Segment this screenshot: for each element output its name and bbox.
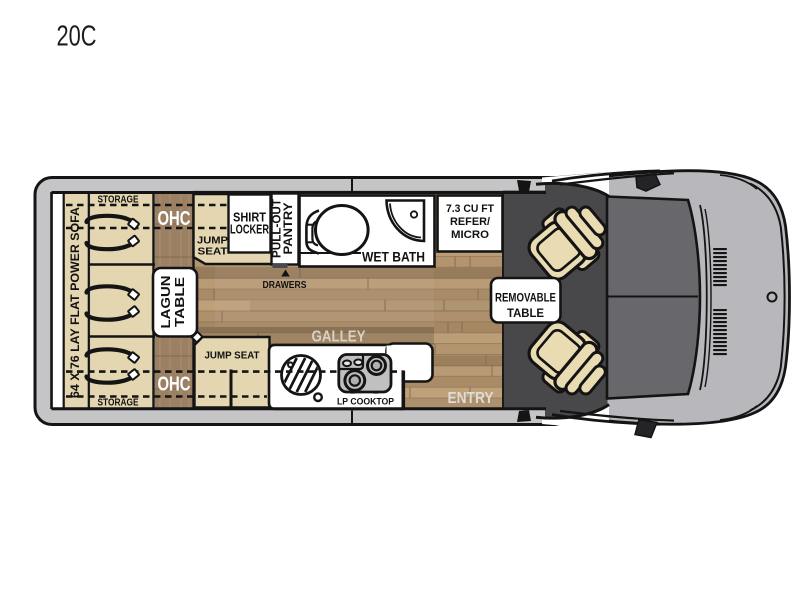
svg-text:PANTRY: PANTRY <box>283 202 295 254</box>
svg-text:20C: 20C <box>57 21 97 53</box>
svg-text:64 X 76 LAY FLAT POWER SOFA: 64 X 76 LAY FLAT POWER SOFA <box>70 207 82 398</box>
svg-text:JUMP SEAT: JUMP SEAT <box>205 350 261 362</box>
svg-text:TABLE: TABLE <box>507 306 544 320</box>
svg-text:ENTRY: ENTRY <box>448 390 494 407</box>
svg-text:WET BATH: WET BATH <box>362 250 425 265</box>
svg-text:SEAT: SEAT <box>198 246 229 258</box>
svg-text:STORAGE: STORAGE <box>98 398 139 409</box>
svg-text:REMOVABLE: REMOVABLE <box>495 291 556 305</box>
svg-text:LOCKER: LOCKER <box>230 223 269 237</box>
svg-text:TABLE: TABLE <box>172 277 187 327</box>
svg-text:REFER/: REFER/ <box>450 216 490 228</box>
svg-text:7.3 CU FT: 7.3 CU FT <box>446 203 494 215</box>
svg-text:GALLEY: GALLEY <box>312 329 367 346</box>
svg-text:PULL-OUT: PULL-OUT <box>272 199 284 258</box>
svg-text:LP COOKTOP: LP COOKTOP <box>337 397 395 408</box>
svg-text:OHC: OHC <box>158 208 191 230</box>
svg-text:DRAWERS: DRAWERS <box>263 280 307 291</box>
svg-text:OHC: OHC <box>158 374 191 396</box>
svg-text:MICRO: MICRO <box>451 229 489 241</box>
svg-text:LAGUN: LAGUN <box>158 276 173 329</box>
